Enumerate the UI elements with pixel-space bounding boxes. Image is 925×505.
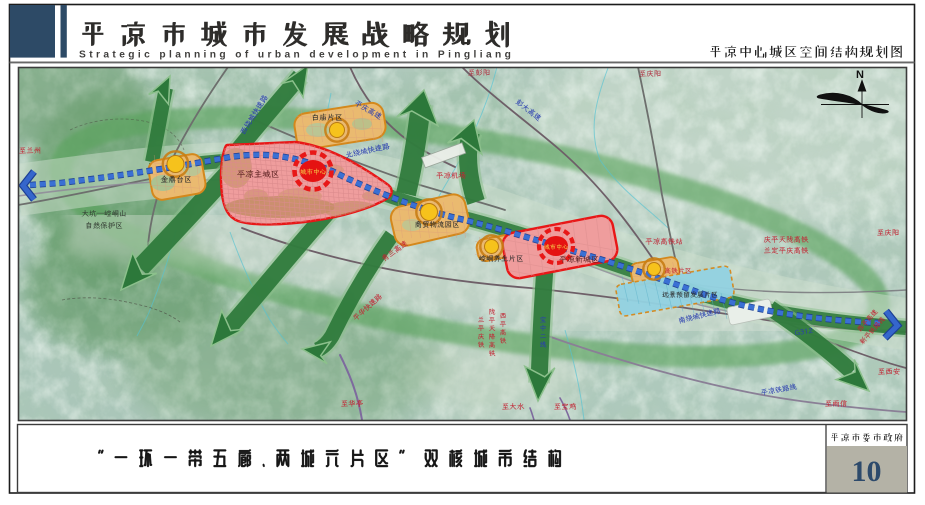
svg-text:N: N [856, 69, 864, 81]
svg-text:10: 10 [852, 455, 882, 488]
